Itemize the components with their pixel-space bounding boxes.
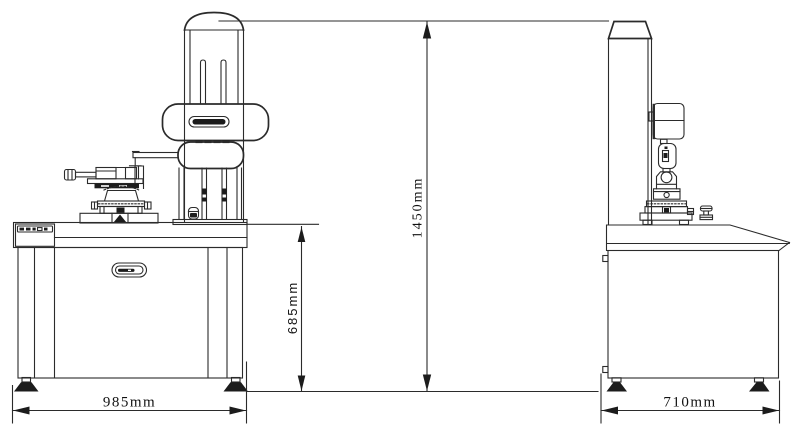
worktable-height-label: 685mm [285, 281, 300, 334]
side-column-cap [609, 22, 652, 39]
front-rotary-table [92, 201, 152, 213]
arrowhead-right-icon [763, 407, 780, 415]
arrowhead-up-icon [298, 227, 306, 242]
front-probe-holder [178, 142, 244, 169]
arrowhead-up-icon [423, 22, 431, 39]
door-hinge [603, 367, 608, 373]
front-fixture [65, 166, 159, 223]
front-width-label: 985mm [103, 395, 156, 411]
side-cabinet-body [608, 251, 779, 379]
dimension-overall-height: 1450mm [411, 22, 432, 392]
front-stylus-arm [130, 152, 179, 166]
dimension-worktable-height: 685mm [248, 224, 319, 391]
panel-button [38, 228, 43, 231]
front-feet [14, 378, 248, 392]
front-tilt-stage [104, 186, 139, 201]
side-probe-holder [659, 139, 677, 168]
front-vise [65, 166, 144, 189]
front-column-limit-stop [189, 208, 199, 220]
front-column-slot-left [201, 60, 206, 104]
side-feet [607, 378, 770, 392]
dimension-drawing-canvas: 1450mm 685mm 985mm 710mm [0, 0, 801, 432]
arrowhead-down-icon [298, 376, 306, 392]
vise-screw [76, 172, 97, 177]
side-column [609, 22, 652, 226]
panel-button [33, 228, 36, 231]
side-measuring-head [649, 104, 684, 140]
fixture-ball-joint [661, 172, 672, 183]
overall-height-label: 1450mm [411, 177, 426, 239]
front-fixture-base [80, 213, 158, 223]
side-fixture [640, 169, 713, 225]
panel-button [26, 228, 31, 231]
front-cabinet-body [18, 248, 243, 379]
arrowhead-left-icon [13, 407, 30, 415]
side-view [603, 22, 790, 392]
panel-button [20, 228, 25, 231]
front-control-panel [16, 224, 55, 246]
dimension-front-width: 985mm [13, 362, 247, 423]
door-hinge [603, 256, 608, 262]
side-cabinet [603, 225, 790, 392]
vise-handle-knob [65, 170, 76, 181]
front-view [14, 13, 269, 392]
front-column [173, 13, 247, 225]
side-depth-label: 710mm [663, 395, 716, 411]
machine-outline-drawing: 1450mm 685mm 985mm 710mm [0, 0, 801, 432]
side-table-knob [700, 206, 713, 220]
front-carriage [163, 104, 269, 143]
arrowhead-left-icon [602, 407, 619, 415]
arrowhead-right-icon [230, 407, 247, 415]
front-column-slot-right [221, 60, 226, 104]
side-tabletop [607, 225, 790, 251]
panel-button [44, 228, 48, 231]
arrowhead-down-icon [423, 375, 431, 392]
dimension-side-depth: 710mm [601, 374, 780, 423]
front-drawer-handle [112, 263, 147, 277]
front-cabinet [14, 223, 249, 392]
